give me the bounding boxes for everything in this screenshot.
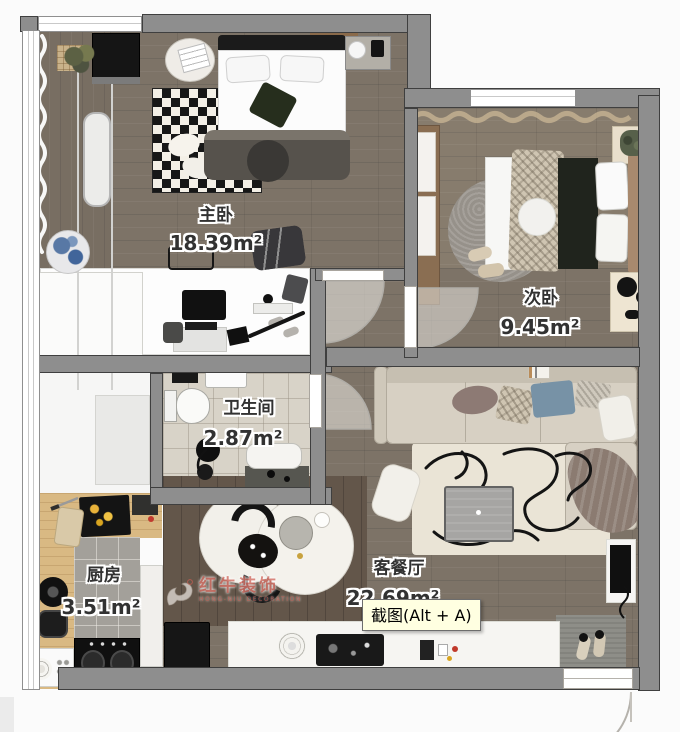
entry-slipper-toe-2 (595, 630, 604, 639)
tv-screen (610, 545, 631, 593)
master-door-leaf (322, 270, 384, 281)
shower-drain (197, 464, 213, 480)
balcony-plant (62, 42, 96, 74)
console-red-dot (452, 646, 458, 652)
master-bed-headboard (218, 35, 346, 51)
cutting-board-lemons (86, 500, 120, 530)
wall-bathroom-bottom (150, 487, 332, 505)
sofa-pillow-knit (495, 385, 535, 425)
label-master-bedroom-name: 主卧 (199, 201, 233, 226)
console-yellow-dot (447, 656, 452, 661)
screenshot-tooltip-text: 截图(Alt + A) (371, 606, 472, 625)
entry-doormat (556, 615, 626, 669)
dining-table-gray (279, 516, 313, 550)
screenshot-tooltip: 截图(Alt + A) (362, 599, 481, 631)
desk-dark-stool (163, 322, 183, 343)
wall-top-right-connector (407, 14, 431, 96)
bath-mat-dot-1 (267, 470, 275, 478)
watermark-text: 红牛装饰 HONG-NIU DECORATION (199, 577, 302, 603)
window-balcony-top (38, 16, 142, 32)
wall-right (638, 95, 660, 691)
dining-plate (314, 512, 330, 528)
stove-knobs (86, 642, 130, 646)
master-pillow-2 (279, 55, 324, 83)
kitchen-red-dot (148, 516, 154, 522)
toilet-bowl (176, 388, 210, 424)
master-round-pouf (247, 140, 289, 182)
wall-top-master (142, 14, 431, 33)
sofa-pillow-white-1 (596, 393, 637, 442)
entry-door-leaf (563, 668, 633, 689)
outside-corner-patch (0, 697, 14, 732)
balcony-black-cabinet (92, 33, 140, 79)
console-cup (438, 644, 448, 656)
console-black-mat (316, 634, 384, 666)
second-bed-pillow-2 (595, 213, 629, 262)
coffee-table-dot (476, 510, 481, 515)
balcony-bench (83, 112, 111, 207)
second-bed-pillow-1 (595, 161, 629, 211)
balcony-beanbag (46, 230, 90, 274)
bath-mat-dot-2 (284, 476, 290, 482)
kitchen-bread-board (53, 506, 84, 547)
wall-bathroom-left (150, 373, 163, 505)
window-left-strip (22, 30, 40, 690)
entry-door-swing-arc (566, 692, 631, 732)
kitchen-floor (74, 537, 140, 638)
watermark-brand: 红牛装饰 (199, 577, 302, 596)
label-kitchen-area: 3.51m² (62, 595, 141, 619)
bathroom-door-leaf (309, 374, 322, 428)
second-bed-dark-blanket (558, 158, 598, 269)
desk-monitor (182, 290, 226, 320)
label-bathroom-name: 卫生间 (224, 394, 275, 419)
storage-cabinet (95, 395, 150, 485)
kitchen-tall-cabinet (140, 565, 163, 667)
floorplan-canvas: 主卧 18.39m² 次卧 9.45m² 卫生间 2.87m² 厨房 3.51m… (0, 0, 680, 732)
sofa-pillow-blue (530, 380, 575, 418)
second-bed-round-cushion (518, 198, 556, 236)
label-master-bedroom-area: 18.39m² (170, 231, 263, 255)
wall-living-top (326, 347, 640, 367)
balcony-rail-2 (111, 68, 113, 390)
sofa-books (528, 366, 550, 379)
master-pillow-1 (225, 54, 271, 83)
watermark-subtitle: HONG-NIU DECORATION (199, 596, 302, 603)
watermark: 红牛装饰 HONG-NIU DECORATION (163, 577, 302, 611)
console-plates (278, 632, 306, 660)
dining-lemon-dot (297, 553, 303, 559)
label-living-dining-name: 客餐厅 (374, 554, 425, 579)
master-black-vase (371, 40, 384, 57)
window-second-bedroom (470, 89, 576, 107)
desk-tray (253, 303, 293, 314)
wall-bottom (58, 667, 640, 690)
master-table-lamp (348, 41, 366, 59)
balcony-rail-1 (77, 68, 79, 390)
entry-slipper-toe-1 (579, 633, 588, 642)
wall-mid-left (22, 355, 332, 373)
bull-logo-icon (163, 577, 195, 611)
label-bathroom-area: 2.87m² (204, 426, 283, 450)
bath-dark-mat (245, 466, 309, 487)
desk-keyboard (185, 322, 217, 330)
balcony-cabinet-ledge (92, 77, 140, 84)
wardrobe-white-block (38, 272, 143, 356)
second-bedroom-door-leaf (404, 286, 417, 348)
label-second-bedroom-area: 9.45m² (501, 315, 580, 339)
console-appliance (420, 640, 434, 660)
label-kitchen-name: 厨房 (87, 561, 121, 586)
waste-bin (164, 622, 210, 670)
label-second-bedroom-name: 次卧 (524, 284, 558, 309)
nightstand-decor-circle-1 (617, 277, 637, 297)
